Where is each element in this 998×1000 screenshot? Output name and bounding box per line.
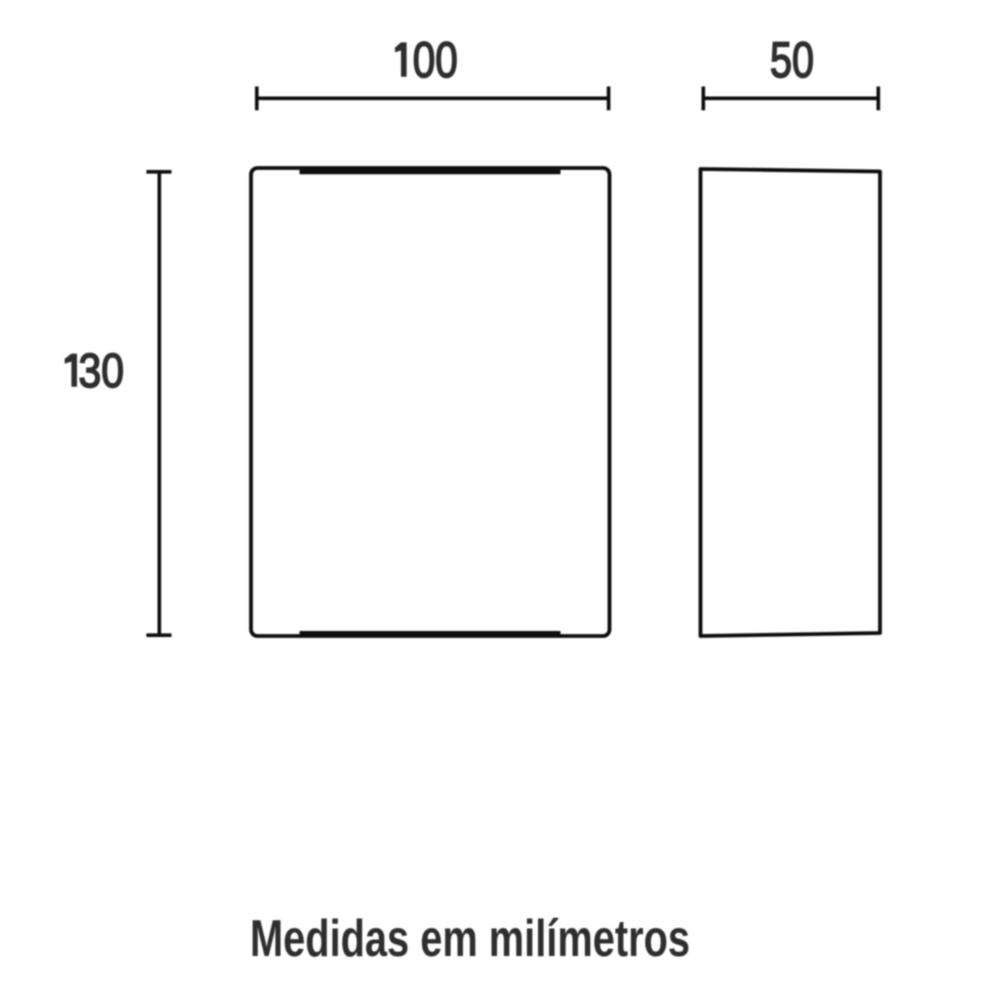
svg-text:00: 00 <box>413 31 458 88</box>
svg-text:30: 30 <box>79 344 125 398</box>
svg-text:Medidas em milímetros: Medidas em milímetros <box>250 910 690 968</box>
svg-text:50: 50 <box>770 31 814 88</box>
